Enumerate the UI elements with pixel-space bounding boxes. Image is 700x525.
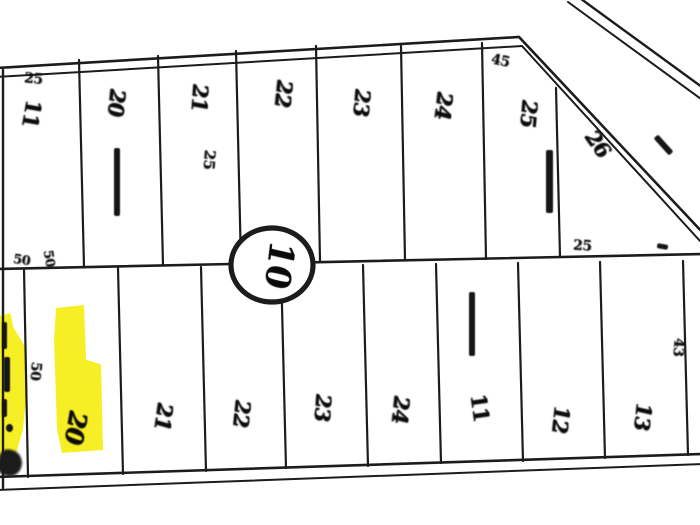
dimension-label: 43 (670, 337, 686, 357)
bottom-boundary-outer-line (0, 454, 700, 477)
dimension-label: 50 (12, 253, 31, 268)
dimension-mark (114, 148, 120, 216)
illegible-text-mark (2, 322, 7, 349)
dimension-label: 50 (27, 361, 43, 381)
lot-number: 24 (389, 389, 413, 430)
lot-number: 22 (272, 73, 296, 114)
top-row-lot-dividers (79, 43, 560, 267)
plat-map: 10 11 20 21 22 23 24 25 26 20 21 22 23 2… (0, 0, 700, 525)
lot-number: 11 (467, 388, 493, 427)
illegible-text-mark (2, 399, 7, 417)
illegible-text-mark (4, 357, 10, 392)
middle-lot-line (0, 254, 700, 269)
lot-number: 23 (350, 82, 374, 122)
dimension-mark (546, 150, 553, 213)
dimension-mark (469, 292, 475, 356)
bottom-row-lot-dividers (24, 261, 688, 477)
lot-number: 21 (151, 396, 176, 437)
dimension-label: 50 (41, 249, 57, 268)
bottom-boundary-inner-line (0, 464, 700, 490)
lot-number: 11 (19, 94, 46, 133)
diagonal-road-inner-line (568, 2, 700, 99)
dimension-label: 25 (573, 238, 592, 253)
lot-number: 13 (631, 396, 655, 437)
lot-number: 22 (230, 393, 254, 434)
dimension-label: 25 (23, 71, 43, 87)
lot-number: 12 (549, 399, 573, 439)
plat-linework (0, 0, 700, 525)
diagonal-road-outer-line (577, 0, 700, 90)
dimension-label: 45 (490, 52, 511, 70)
lot-number: 21 (188, 78, 211, 118)
lot-number: 25 (517, 93, 541, 133)
block-number: 10 (259, 238, 298, 293)
lot-number: 20 (105, 82, 129, 123)
dimension-label: 25 (201, 149, 218, 170)
illegible-text-mark (6, 424, 13, 432)
lot-number: 23 (311, 388, 334, 428)
lot-number: 24 (432, 85, 457, 126)
